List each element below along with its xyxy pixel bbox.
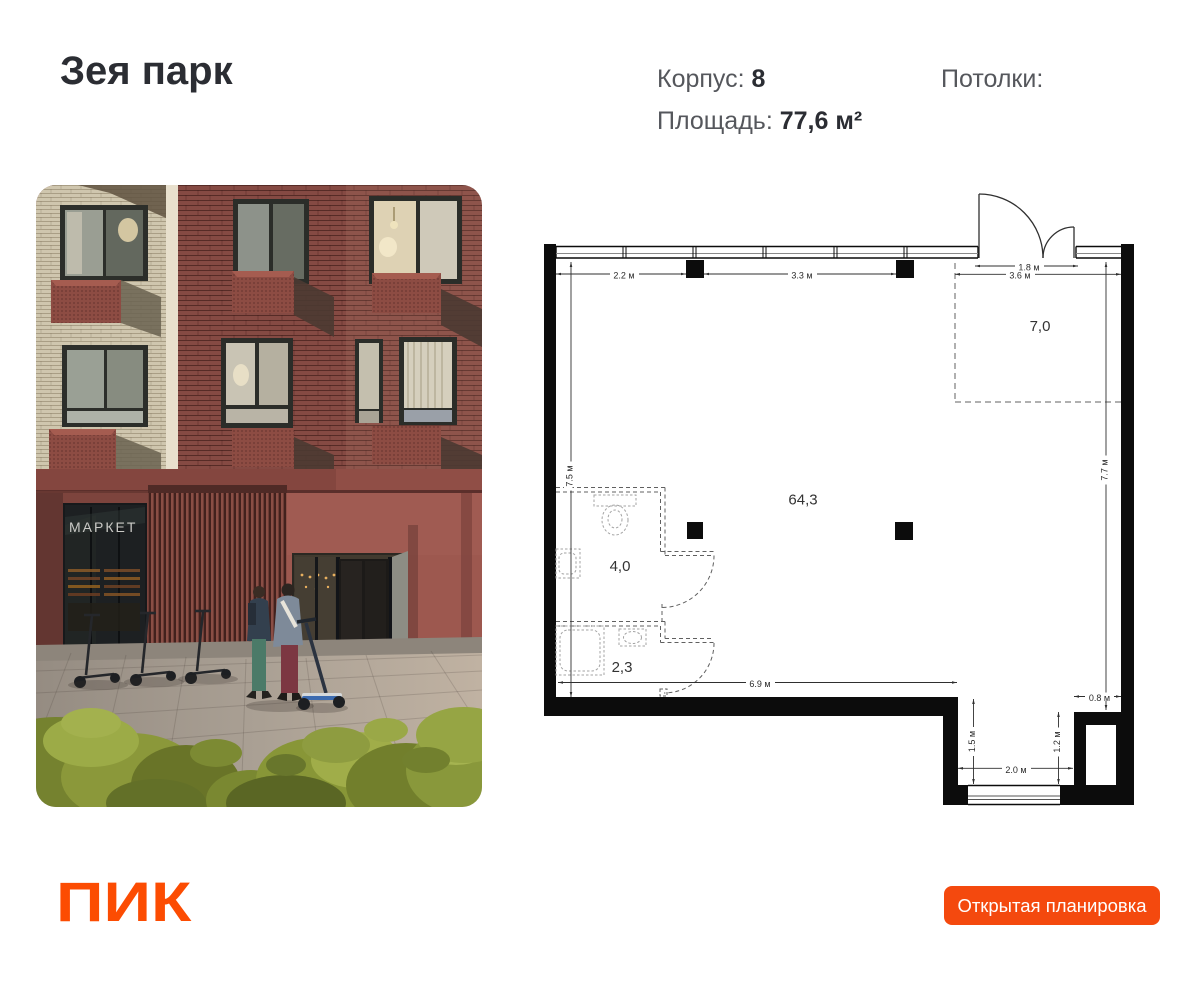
svg-text:3.6 м: 3.6 м bbox=[1009, 271, 1030, 281]
svg-text:4,0: 4,0 bbox=[610, 558, 631, 575]
svg-text:2.2 м: 2.2 м bbox=[613, 271, 634, 281]
svg-text:2.0 м: 2.0 м bbox=[1005, 765, 1026, 775]
svg-text:2,3: 2,3 bbox=[612, 659, 633, 676]
svg-text:7.7 м: 7.7 м bbox=[1100, 459, 1110, 480]
svg-text:МАРКЕТ: МАРКЕТ bbox=[69, 519, 137, 535]
svg-text:7.5 м: 7.5 м bbox=[565, 465, 575, 486]
svg-text:0.8 м: 0.8 м bbox=[1089, 693, 1110, 703]
svg-text:6.9 м: 6.9 м bbox=[749, 679, 770, 689]
svg-text:64,3: 64,3 bbox=[788, 492, 817, 509]
svg-text:1.5 м: 1.5 м bbox=[967, 731, 977, 752]
svg-text:1.2 м: 1.2 м bbox=[1052, 731, 1062, 752]
svg-text:7,0: 7,0 bbox=[1030, 318, 1051, 335]
svg-text:3.3 м: 3.3 м bbox=[791, 271, 812, 281]
